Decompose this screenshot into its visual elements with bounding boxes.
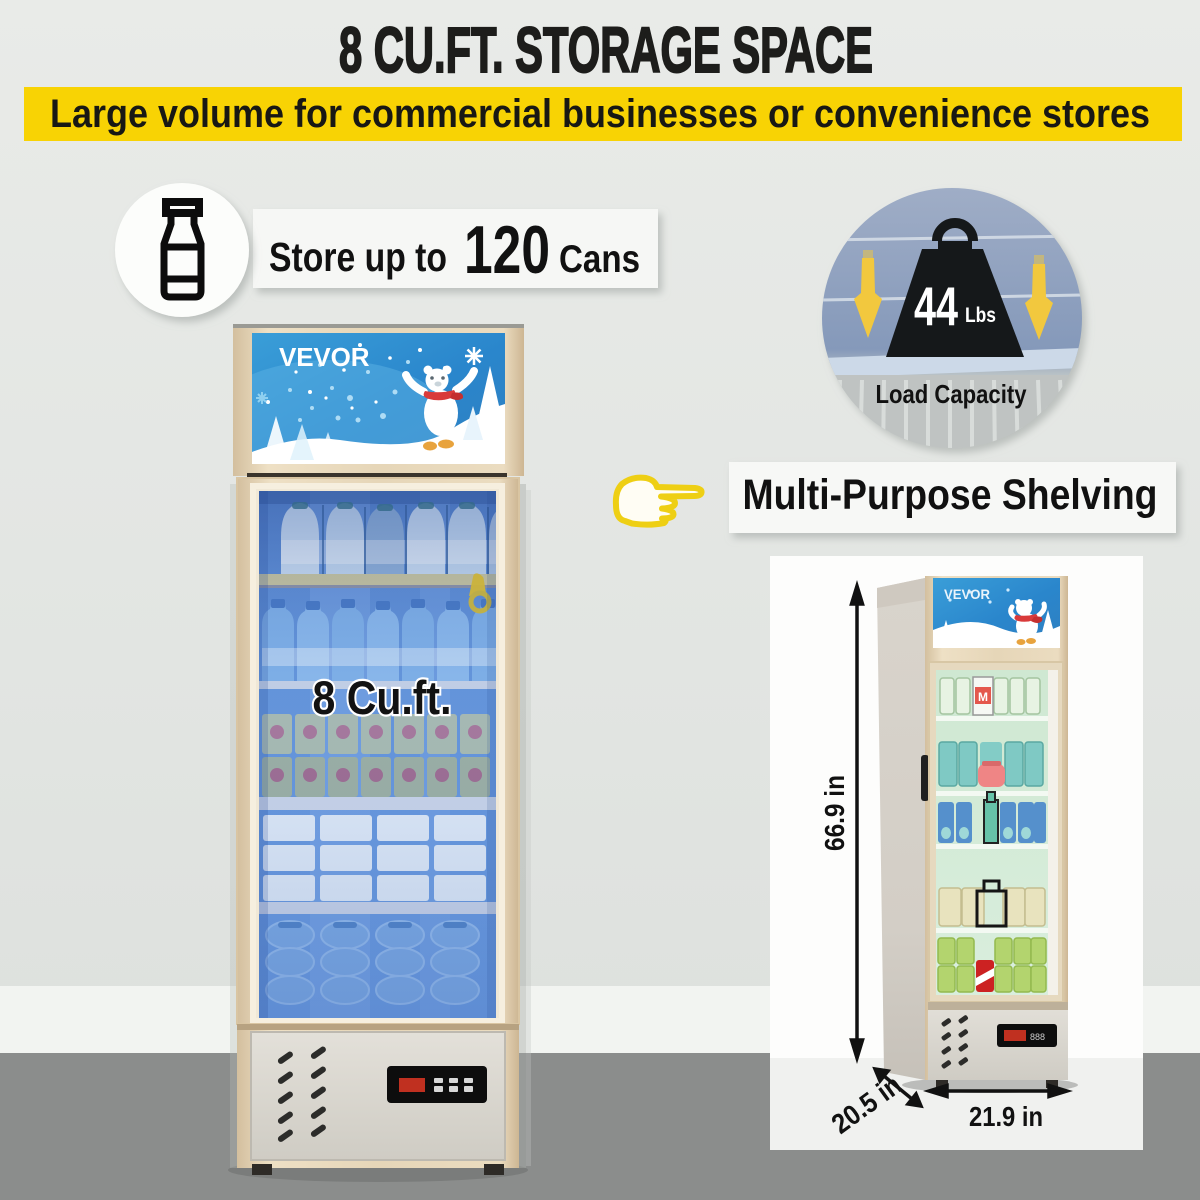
svg-text:VEVOR: VEVOR	[944, 586, 990, 602]
svg-text:44: 44	[914, 275, 958, 337]
svg-text:Load Capacity: Load Capacity	[876, 379, 1027, 409]
svg-text:Multi-Purpose Shelving: Multi-Purpose Shelving	[743, 471, 1158, 519]
svg-text:Cans: Cans	[559, 238, 640, 281]
svg-text:888: 888	[1030, 1032, 1045, 1042]
svg-text:8 Cu.ft.: 8 Cu.ft.	[313, 671, 452, 724]
svg-text:21.9 in: 21.9 in	[969, 1101, 1043, 1132]
svg-text:120: 120	[464, 212, 550, 288]
svg-text:Large volume for commercial bu: Large volume for commercial businesses o…	[50, 92, 1150, 136]
svg-text:Store up to: Store up to	[269, 234, 447, 280]
svg-text:66.9 in: 66.9 in	[819, 775, 850, 851]
svg-text:Lbs: Lbs	[965, 304, 996, 327]
svg-text:8 CU.FT. STORAGE SPACE: 8 CU.FT. STORAGE SPACE	[339, 14, 873, 86]
svg-text:VEVOR: VEVOR	[279, 342, 371, 372]
svg-text:M: M	[978, 690, 988, 704]
